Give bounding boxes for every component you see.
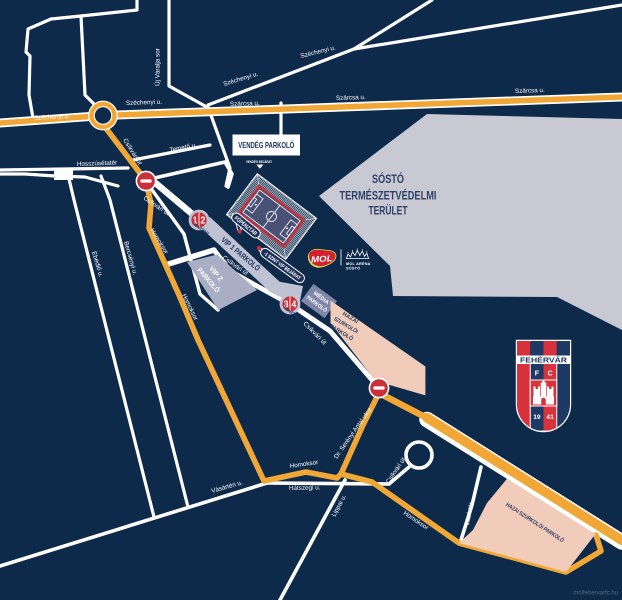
svg-text:Új Váralja sor: Új Váralja sor	[153, 48, 162, 86]
svg-text:Szárcsa u.: Szárcsa u.	[336, 94, 366, 102]
svg-text:FEHÉRVÁR: FEHÉRVÁR	[520, 355, 568, 364]
svg-text:TERÜLET: TERÜLET	[369, 203, 408, 218]
svg-text:Hátszegi u.: Hátszegi u.	[289, 484, 321, 492]
svg-text:MOL ARÉNA: MOL ARÉNA	[346, 261, 371, 266]
svg-text:MOL: MOL	[311, 253, 333, 264]
svg-text:Szárcsa u.: Szárcsa u.	[515, 87, 545, 95]
svg-text:41: 41	[546, 414, 554, 421]
svg-text:VENDÉG PARKOLÓ: VENDÉG PARKOLÓ	[238, 139, 294, 150]
svg-text:F: F	[535, 371, 540, 378]
svg-text:Széchenyi u.: Széchenyi u.	[126, 99, 163, 107]
svg-text:TERMÉSZETVÉDELMI: TERMÉSZETVÉDELMI	[340, 188, 437, 203]
svg-text:SÓSTÓ: SÓSTÓ	[346, 265, 360, 270]
svg-text:C: C	[548, 371, 553, 378]
svg-text:molfehervarfc.hu: molfehervarfc.hu	[573, 591, 618, 597]
svg-text:VENDÉG BEJÁRAT: VENDÉG BEJÁRAT	[246, 159, 273, 164]
svg-text:19: 19	[533, 414, 541, 421]
svg-text:Hosszúsétatér: Hosszúsétatér	[77, 160, 117, 168]
svg-text:SÓSTÓ: SÓSTÓ	[372, 171, 404, 186]
svg-text:Szárcsa u.: Szárcsa u.	[230, 100, 260, 108]
